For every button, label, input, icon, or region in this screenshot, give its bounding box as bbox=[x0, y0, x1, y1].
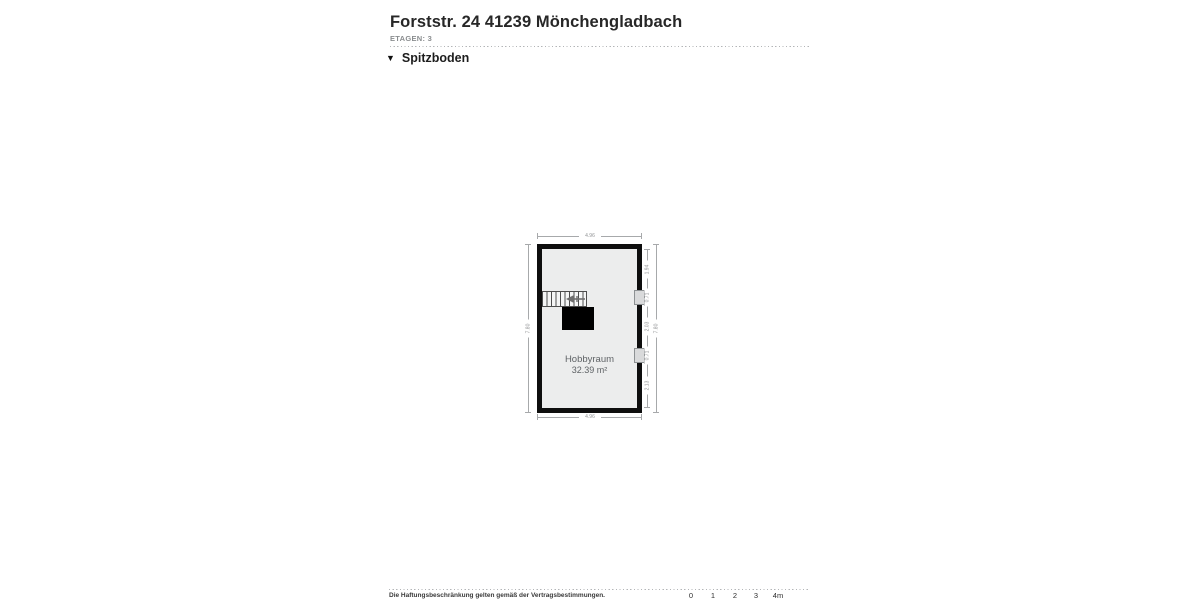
triangle-down-icon: ▼ bbox=[386, 51, 395, 65]
scale-tick-label: 4m bbox=[770, 591, 786, 600]
dimension-tick bbox=[525, 244, 531, 245]
dimension-tick bbox=[653, 412, 659, 413]
dimension-tick bbox=[641, 233, 642, 239]
window-marker bbox=[634, 290, 645, 305]
stair-direction-arrow-icon bbox=[565, 294, 587, 304]
dimension-segment: 0.71 bbox=[645, 347, 652, 365]
dimension-segment: 1.94 bbox=[645, 261, 652, 279]
room-area: 32.39 m² bbox=[537, 365, 642, 376]
room-name: Hobbyraum bbox=[537, 354, 642, 365]
dimension-segment: 2.03 bbox=[645, 318, 652, 336]
dimension-tick bbox=[525, 412, 531, 413]
section-header-spitzboden[interactable]: ▼ Spitzboden bbox=[386, 51, 469, 65]
dimension-tick bbox=[644, 407, 650, 408]
scale-tick-label: 1 bbox=[705, 591, 721, 600]
dimension-value-left: 7.80 bbox=[526, 320, 533, 338]
dimension-segment: 2.13 bbox=[645, 377, 652, 395]
footer-separator bbox=[389, 589, 810, 590]
disclaimer-text: Die Haftungsbeschränkung gelten gemäß de… bbox=[389, 592, 605, 599]
dimension-tick bbox=[641, 414, 642, 420]
scale-tick-label: 0 bbox=[683, 591, 699, 600]
stair-void bbox=[562, 307, 594, 330]
header-separator bbox=[390, 46, 810, 47]
dimension-tick bbox=[537, 233, 538, 239]
dimension-tick bbox=[537, 414, 538, 420]
dimension-value-right-total: 7.80 bbox=[654, 320, 661, 338]
room-label: Hobbyraum 32.39 m² bbox=[537, 354, 642, 376]
dimension-value-bottom: 4.96 bbox=[579, 414, 601, 421]
dimension-segment: 0.71 bbox=[645, 289, 652, 307]
dimension-tick bbox=[644, 249, 650, 250]
dimension-value-top: 4.96 bbox=[579, 233, 601, 240]
scale-tick-label: 2 bbox=[727, 591, 743, 600]
scale-tick-label: 3 bbox=[748, 591, 764, 600]
floors-label: ETAGEN: 3 bbox=[390, 34, 432, 43]
dimension-tick bbox=[653, 244, 659, 245]
section-label: Spitzboden bbox=[402, 51, 469, 65]
page-title: Forststr. 24 41239 Mönchengladbach bbox=[390, 13, 682, 32]
